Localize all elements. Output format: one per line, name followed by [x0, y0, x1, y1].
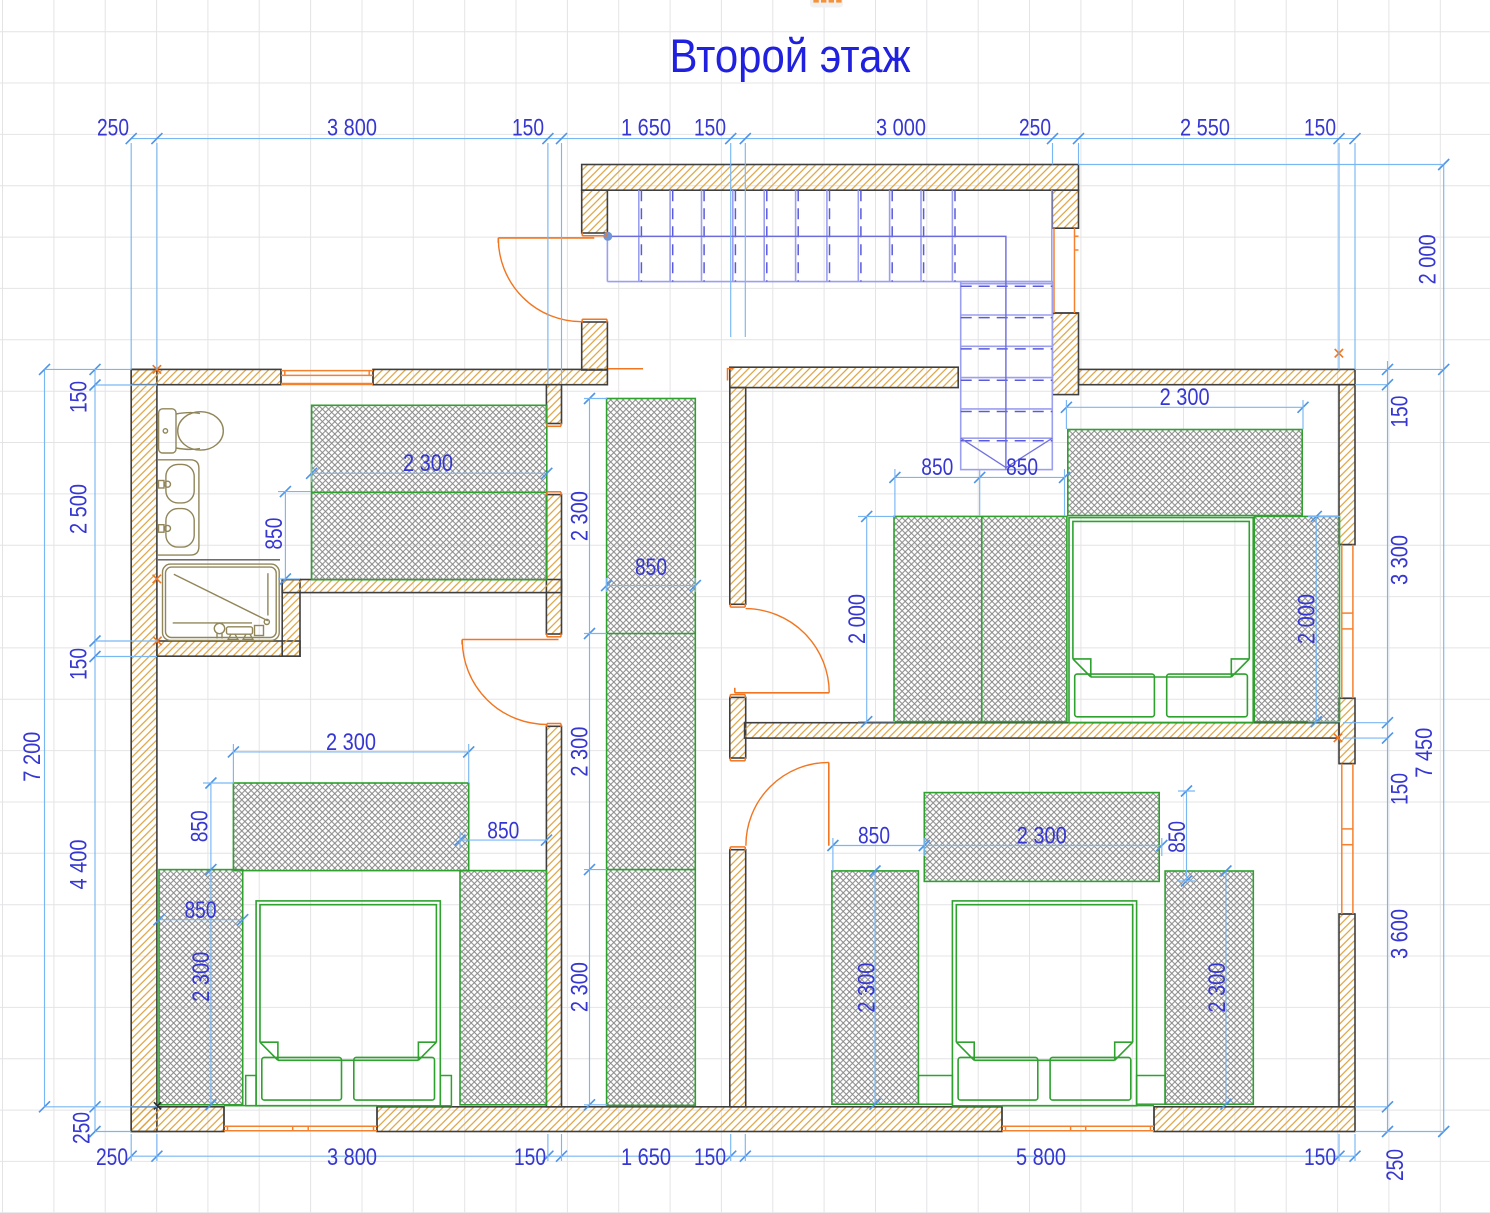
svg-text:150: 150: [1304, 115, 1336, 142]
svg-text:150: 150: [694, 1144, 726, 1171]
svg-text:850: 850: [635, 554, 667, 581]
svg-text:2 300: 2 300: [326, 729, 376, 756]
svg-text:3 600: 3 600: [1387, 909, 1414, 959]
svg-text:3 800: 3 800: [327, 1144, 377, 1171]
svg-text:2 300: 2 300: [566, 727, 593, 777]
svg-text:150: 150: [66, 381, 93, 413]
svg-text:1 650: 1 650: [621, 115, 671, 142]
svg-text:250: 250: [1382, 1149, 1409, 1181]
svg-text:150: 150: [512, 115, 544, 142]
svg-text:1 650: 1 650: [621, 1144, 671, 1171]
svg-text:2 300: 2 300: [566, 962, 593, 1012]
svg-text:150: 150: [66, 648, 93, 680]
svg-text:850: 850: [187, 810, 214, 842]
svg-text:850: 850: [858, 823, 890, 850]
svg-text:250: 250: [96, 1144, 128, 1171]
svg-text:2 300: 2 300: [188, 952, 215, 1002]
svg-text:2 000: 2 000: [844, 594, 871, 644]
svg-text:3 800: 3 800: [327, 115, 377, 142]
svg-text:850: 850: [185, 897, 217, 924]
svg-text:150: 150: [694, 115, 726, 142]
svg-text:2 300: 2 300: [403, 450, 453, 477]
svg-text:150: 150: [1387, 773, 1414, 805]
svg-text:850: 850: [1006, 454, 1038, 481]
svg-text:150: 150: [514, 1144, 546, 1171]
svg-text:7 450: 7 450: [1411, 728, 1438, 778]
svg-text:4 400: 4 400: [66, 840, 93, 890]
svg-text:2 300: 2 300: [853, 963, 880, 1013]
svg-text:2 500: 2 500: [66, 484, 93, 534]
svg-text:2 000: 2 000: [1415, 234, 1442, 284]
svg-text:150: 150: [1304, 1144, 1336, 1171]
svg-text:850: 850: [261, 518, 288, 550]
svg-text:5 800: 5 800: [1016, 1144, 1066, 1171]
svg-text:2 000: 2 000: [1294, 594, 1321, 644]
svg-text:2 300: 2 300: [1160, 384, 1210, 411]
svg-text:850: 850: [921, 454, 953, 481]
svg-text:250: 250: [97, 115, 129, 142]
svg-text:7 200: 7 200: [19, 732, 46, 782]
svg-text:Второй этаж: Второй этаж: [670, 29, 911, 82]
svg-text:3 000: 3 000: [876, 115, 926, 142]
svg-text:2 300: 2 300: [1204, 963, 1231, 1013]
svg-text:150: 150: [1387, 396, 1414, 428]
svg-text:250: 250: [1019, 115, 1051, 142]
svg-text:3 300: 3 300: [1387, 535, 1414, 585]
svg-text:2 300: 2 300: [1017, 823, 1067, 850]
svg-text:850: 850: [1164, 821, 1191, 853]
svg-text:2 300: 2 300: [566, 491, 593, 541]
svg-text:2 550: 2 550: [1180, 115, 1230, 142]
svg-text:850: 850: [487, 817, 519, 844]
svg-text:250: 250: [69, 1112, 96, 1144]
